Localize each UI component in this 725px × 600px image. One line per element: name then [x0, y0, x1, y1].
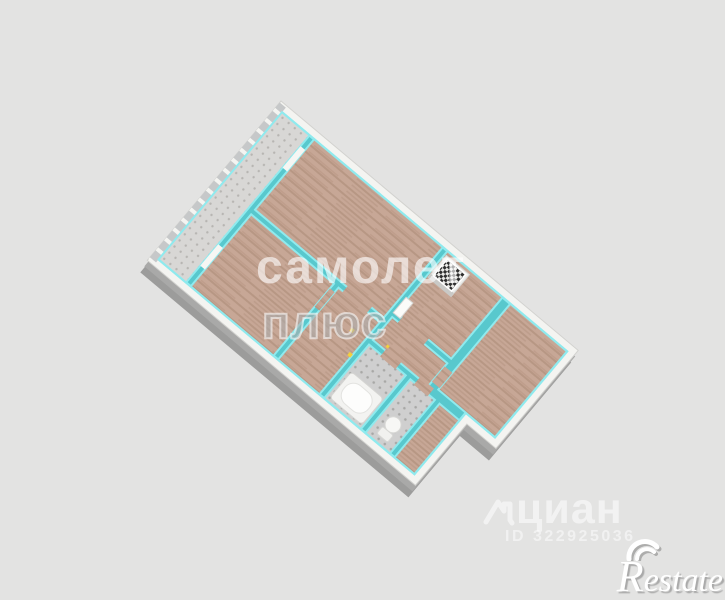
cian-label: циан	[516, 490, 623, 528]
restate-swoosh-icon	[623, 537, 669, 561]
watermark-samolet: самолет	[256, 240, 466, 295]
listing-photo: самолет плюс циан ID 322925036 Restate	[0, 0, 725, 600]
restate-logo: Restate	[617, 539, 723, 600]
watermark-plus: плюс	[262, 295, 387, 349]
restate-text: estate	[644, 562, 723, 599]
house-icon	[482, 490, 516, 526]
watermark-cian: циан	[482, 490, 623, 528]
